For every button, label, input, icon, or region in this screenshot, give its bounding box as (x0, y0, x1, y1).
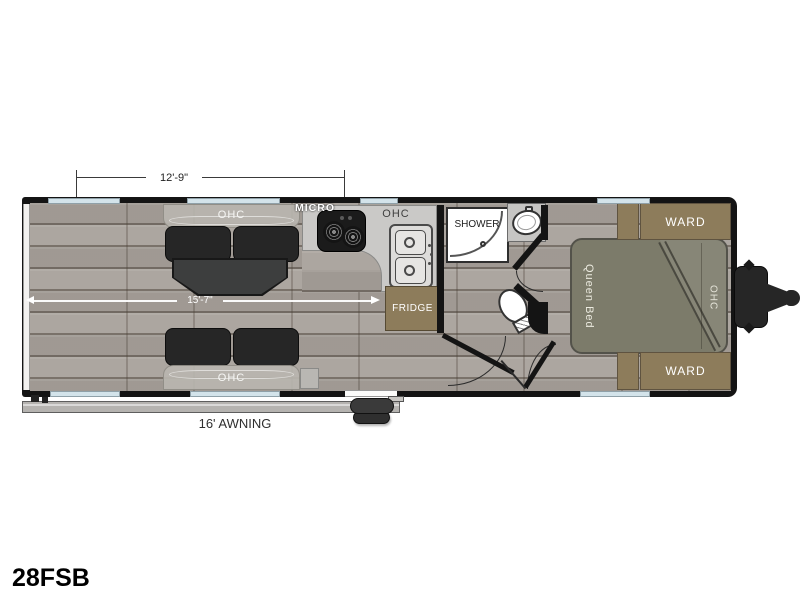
stove-knob-icon (348, 216, 352, 220)
shower-label: SHOWER (447, 218, 507, 230)
floorplan-canvas: 12'-9" OHC OHC MICRO OHC (0, 0, 800, 600)
awning-label: 16' AWNING (168, 415, 302, 432)
entry-step (350, 398, 394, 414)
dimension-line-mid-left (32, 300, 177, 302)
hitch-body (734, 266, 768, 328)
faucet-icon (430, 253, 433, 256)
ohc-label-top: OHC (163, 205, 300, 225)
model-label: 28FSB (12, 564, 152, 594)
awning-roller-icon (42, 397, 48, 403)
kitchen-counter-notch (302, 250, 382, 292)
sink-drain-icon (404, 237, 415, 248)
stove (317, 210, 366, 252)
interior-cabinet (300, 368, 319, 389)
kitchen-sink (389, 224, 433, 288)
dimension-arrow-right (371, 296, 380, 304)
bed-seam-line (701, 243, 702, 349)
awning-roller-icon (31, 395, 39, 402)
sofa-cushion (165, 328, 231, 366)
ohc-label-bed-text: OHC (708, 285, 719, 310)
micro-label: MICRO (289, 201, 341, 214)
ohc-label-bottom: OHC (163, 368, 300, 388)
dimension-arrow-left (26, 296, 34, 304)
window (190, 391, 280, 397)
window (50, 391, 120, 397)
faucet-icon (428, 262, 431, 265)
queen-bed-label: Queen Bed (578, 248, 600, 344)
dimension-label-top: 12'-9" (146, 170, 202, 185)
queen-bed-label-text: Queen Bed (583, 264, 595, 329)
dimension-line-top-left (76, 177, 146, 178)
ward-bottom: WARD (640, 352, 731, 390)
faucet-icon (428, 244, 431, 247)
fridge: FRIDGE (385, 286, 440, 331)
ward-top: WARD (640, 203, 731, 240)
dimension-line-top-right (202, 177, 345, 178)
awning-bar-highlight (23, 404, 399, 406)
sink-drain-icon (404, 265, 415, 276)
dimension-line-mid-right (223, 300, 371, 302)
hitch-coupler (786, 290, 800, 306)
burner-icon (342, 226, 364, 248)
window (187, 198, 280, 204)
ward-top-small (617, 203, 639, 240)
sofa-cushion (233, 328, 299, 366)
sofa-cushion (233, 226, 299, 262)
dimension-label-mid: 15'-7" (177, 293, 223, 307)
dimension-tick-left (76, 170, 77, 198)
shower-drain-icon (480, 241, 486, 247)
window (597, 198, 650, 204)
dimension-tick-right (344, 170, 345, 198)
dinette-table-top (174, 260, 286, 294)
ohc-label-kitchen: OHC (376, 207, 416, 221)
window (48, 198, 120, 204)
bathroom-wall-left (437, 205, 444, 333)
shower (446, 207, 509, 263)
stove-knob-icon (340, 216, 344, 220)
window (580, 391, 650, 397)
sofa-cushion (165, 226, 231, 262)
ohc-label-bed: OHC (704, 270, 722, 326)
faucet-icon (525, 206, 533, 212)
awning-bar (22, 401, 400, 413)
ward-bottom-small (617, 352, 639, 390)
window (360, 198, 398, 204)
